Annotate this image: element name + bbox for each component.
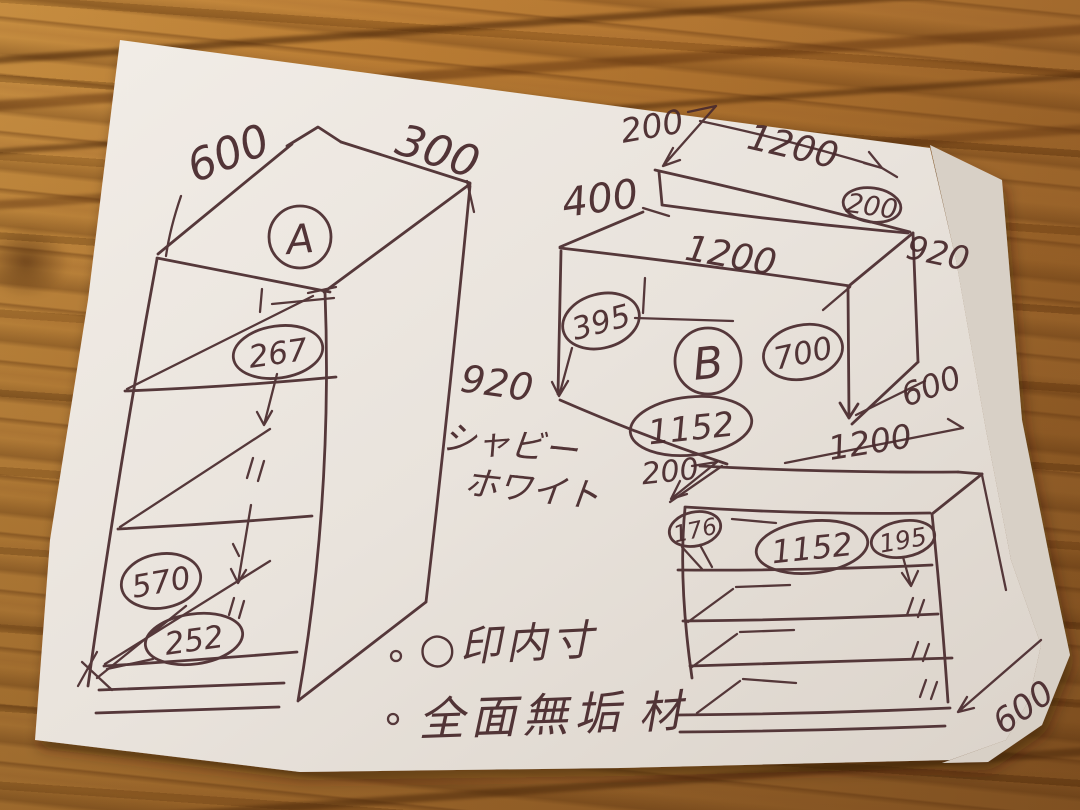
note-circled-marks-are-inner-dims: ○印内寸 [418,615,600,673]
dim-label-c-top-offset: 200 [640,452,701,493]
note-solid-wood: 全面無垢 [417,685,627,746]
photo-of-hand-drawn-furniture-sketch: 600 300 A 267 570 252 920 シャビー ホワイト [0,0,1080,810]
sketch-svg: 600 300 A 267 570 252 920 シャビー ホワイト [0,0,1080,810]
unit-b-letter: B [690,337,725,391]
